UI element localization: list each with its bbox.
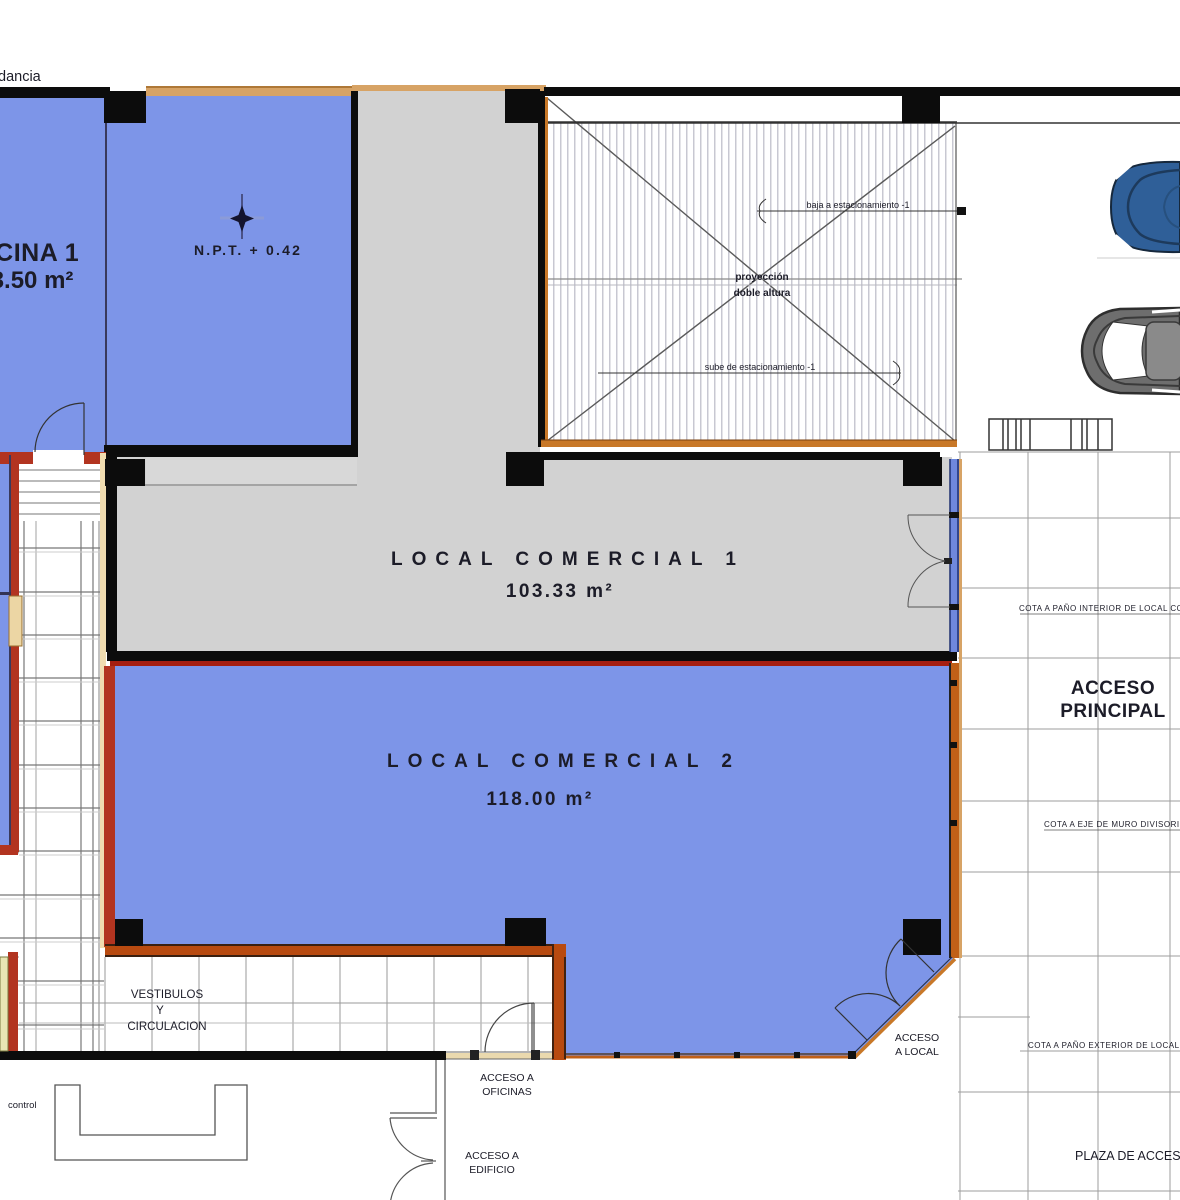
svg-text:control: control bbox=[8, 1100, 37, 1111]
svg-text:doble altura: doble altura bbox=[734, 288, 791, 299]
svg-text:N.P.T. + 0.42: N.P.T. + 0.42 bbox=[194, 242, 302, 258]
svg-text:118.00 m²: 118.00 m² bbox=[486, 789, 593, 810]
svg-text:OFICINA 1: OFICINA 1 bbox=[0, 239, 79, 267]
svg-text:COTA A PAÑO EXTERIOR DE LOCAL: COTA A PAÑO EXTERIOR DE LOCAL bbox=[1028, 1041, 1180, 1050]
svg-text:PLAZA DE ACCESO: PLAZA DE ACCESO bbox=[1075, 1149, 1180, 1163]
svg-text:VESTIBULOS: VESTIBULOS bbox=[131, 989, 204, 1001]
svg-text:dancia: dancia bbox=[0, 69, 42, 85]
svg-text:LOCAL COMERCIAL 1: LOCAL COMERCIAL 1 bbox=[391, 549, 745, 570]
svg-text:proyección: proyección bbox=[735, 272, 788, 283]
svg-text:A LOCAL: A LOCAL bbox=[895, 1046, 939, 1058]
svg-text:ACCESO A: ACCESO A bbox=[465, 1150, 519, 1162]
svg-text:LOCAL COMERCIAL 2: LOCAL COMERCIAL 2 bbox=[387, 751, 741, 772]
svg-text:PRINCIPAL: PRINCIPAL bbox=[1060, 701, 1165, 722]
svg-text:103.33 m²: 103.33 m² bbox=[506, 581, 614, 602]
svg-text:CIRCULACION: CIRCULACION bbox=[127, 1021, 206, 1033]
svg-text:Y: Y bbox=[156, 1005, 164, 1017]
svg-text:ACCESO: ACCESO bbox=[1071, 678, 1155, 699]
svg-text:COTA A EJE DE MURO DIVISORIO: COTA A EJE DE MURO DIVISORIO bbox=[1044, 820, 1180, 829]
svg-text:ACCESO A: ACCESO A bbox=[480, 1072, 534, 1084]
svg-text:EDIFICIO: EDIFICIO bbox=[469, 1164, 515, 1176]
svg-text:sube de estacionamiento -1: sube de estacionamiento -1 bbox=[705, 362, 816, 372]
svg-text:baja a estacionamiento -1: baja a estacionamiento -1 bbox=[806, 200, 909, 210]
svg-text:OFICINAS: OFICINAS bbox=[482, 1086, 532, 1098]
svg-text:103.50 m²: 103.50 m² bbox=[0, 267, 73, 294]
svg-text:ACCESO: ACCESO bbox=[895, 1032, 939, 1044]
svg-text:COTA A PAÑO INTERIOR DE LOCAL: COTA A PAÑO INTERIOR DE LOCAL CO bbox=[1019, 604, 1180, 613]
